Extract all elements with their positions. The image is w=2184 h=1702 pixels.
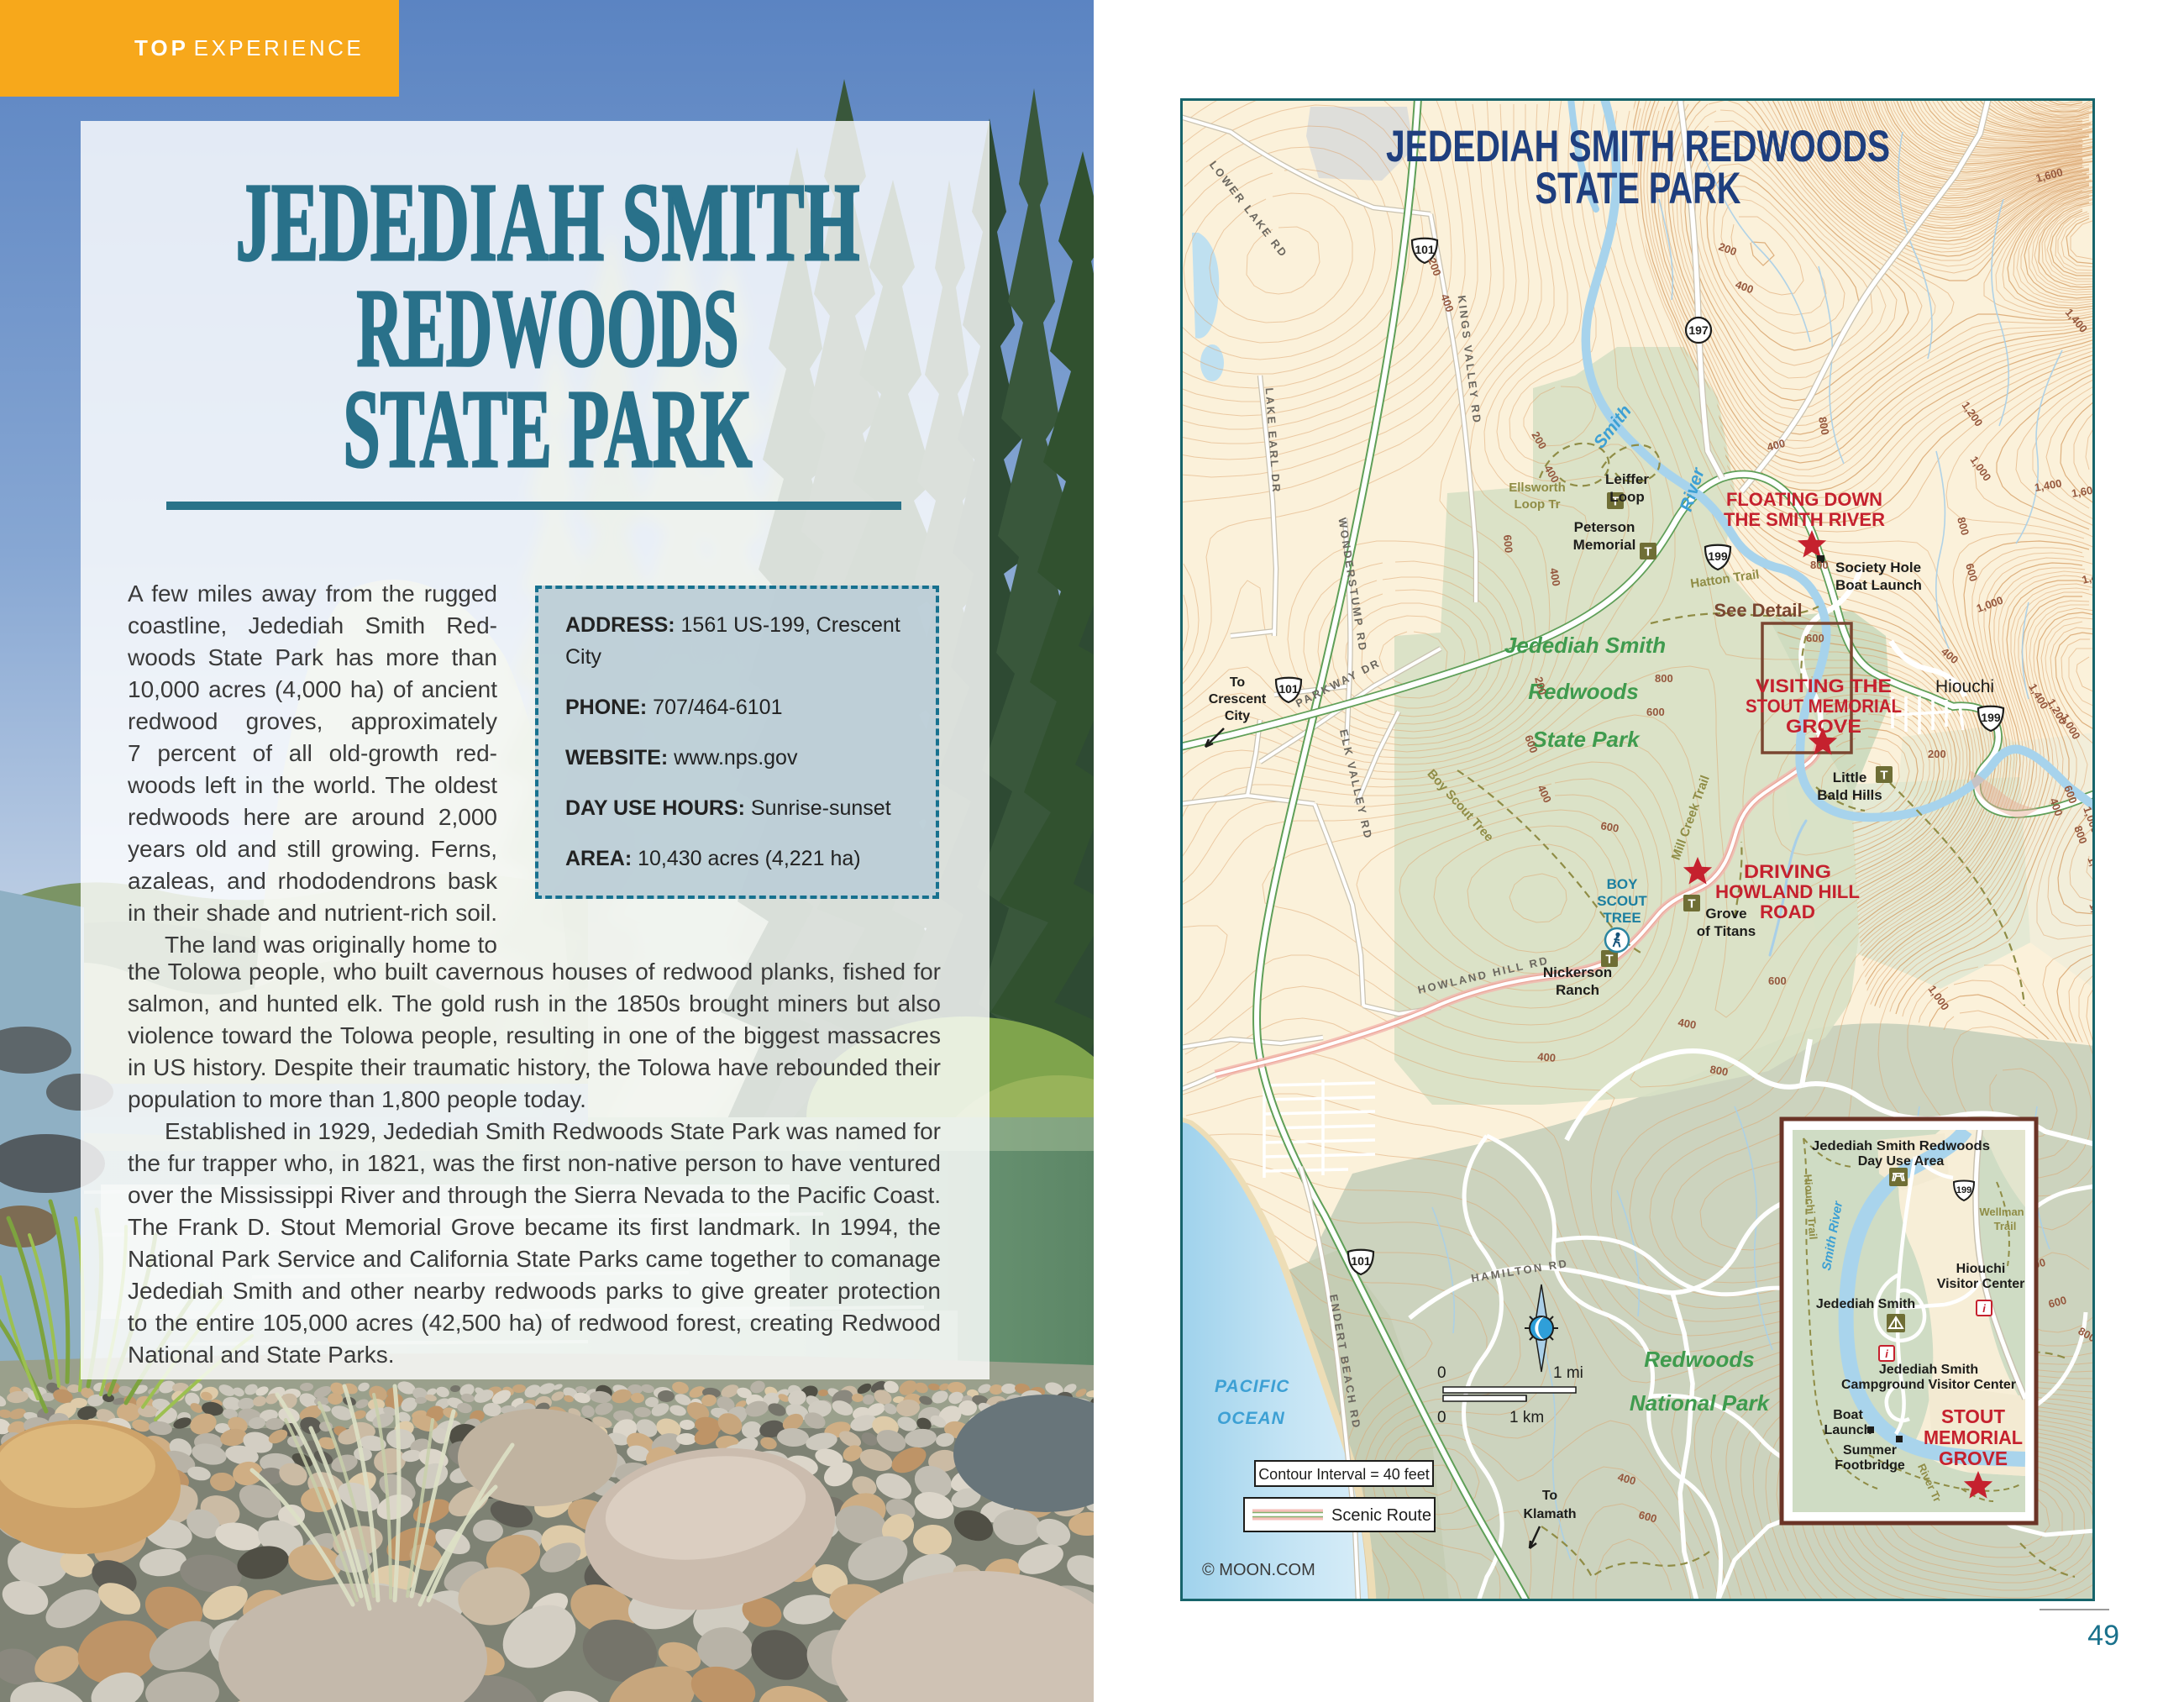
svg-text:Leiffer: Leiffer [1605,471,1649,487]
svg-text:199: 199 [1956,1185,1971,1195]
svg-text:197: 197 [1688,323,1709,337]
svg-text:Crescent: Crescent [1209,692,1267,707]
svg-text:199: 199 [1708,549,1728,563]
svg-text:i: i [1982,1302,1986,1315]
svg-text:ROAD: ROAD [1760,901,1815,922]
svg-text:Launch: Launch [1824,1423,1872,1437]
svg-text:State Park: State Park [1532,727,1641,752]
svg-text:OCEAN: OCEAN [1217,1409,1285,1428]
svg-text:To: To [1542,1489,1558,1503]
svg-text:Hiouchi: Hiouchi [1935,677,1994,696]
svg-text:Ellsworth: Ellsworth [1509,481,1566,495]
svg-text:STATE PARK: STATE PARK [344,366,753,491]
svg-text:GROVE: GROVE [1786,716,1861,737]
svg-text:Little: Little [1833,770,1867,785]
svg-text:of Titans: of Titans [1697,923,1756,939]
svg-text:Jedediah Smith Redwoods: Jedediah Smith Redwoods [1812,1139,1990,1153]
svg-text:Loop Tr: Loop Tr [1515,497,1561,512]
svg-text:Klamath: Klamath [1523,1507,1576,1521]
svg-text:Boat Launch: Boat Launch [1835,577,1922,593]
svg-text:PACIFIC: PACIFIC [1215,1377,1289,1396]
svg-text:Day Use Area: Day Use Area [1858,1154,1945,1169]
svg-text:Visitor Center: Visitor Center [1937,1277,2025,1291]
svg-text:STOUT MEMORIAL: STOUT MEMORIAL [1746,696,1902,717]
svg-text:DRIVING: DRIVING [1744,861,1831,882]
svg-text:Memorial: Memorial [1573,537,1636,553]
svg-text:Trail: Trail [1994,1220,2017,1232]
svg-text:Bald Hills: Bald Hills [1817,787,1882,803]
svg-text:0: 0 [1437,1364,1446,1382]
svg-text:HOWLAND HILL: HOWLAND HILL [1715,881,1860,902]
svg-text:Contour Interval = 40 feet: Contour Interval = 40 feet [1258,1466,1430,1483]
svg-text:Jedediah Smith: Jedediah Smith [1816,1297,1915,1311]
svg-text:Jedediah Smith: Jedediah Smith [1879,1363,1978,1377]
svg-text:© MOON.COM: © MOON.COM [1202,1561,1315,1579]
svg-text:Scenic Route: Scenic Route [1331,1506,1431,1525]
svg-text:101: 101 [1351,1254,1371,1268]
svg-text:Jedediah Smith: Jedediah Smith [1504,633,1666,658]
svg-text:VISITING THE: VISITING THE [1756,675,1892,696]
svg-text:TREE: TREE [1603,910,1641,926]
svg-text:Peterson: Peterson [1574,519,1635,535]
svg-text:MEMORIAL: MEMORIAL [1924,1426,2023,1448]
svg-text:600: 600 [1806,632,1824,644]
svg-text:STATE PARK: STATE PARK [1536,164,1741,213]
svg-text:Boat: Boat [1833,1408,1863,1422]
svg-text:BOY: BOY [1607,876,1639,892]
svg-text:National Park: National Park [1630,1390,1771,1416]
svg-text:See Detail: See Detail [1714,600,1802,621]
svg-text:To: To [1230,675,1246,690]
svg-text:0: 0 [1437,1409,1446,1426]
svg-text:600: 600 [1768,974,1787,987]
svg-text:Grove: Grove [1705,906,1746,922]
svg-text:1 km: 1 km [1509,1409,1544,1426]
svg-text:400: 400 [1537,1050,1557,1064]
svg-text:STOUT: STOUT [1941,1405,2005,1427]
svg-text:800: 800 [1655,672,1673,685]
svg-text:Footbridge: Footbridge [1835,1458,1905,1473]
svg-text:101: 101 [1415,243,1435,256]
svg-text:Summer: Summer [1843,1443,1897,1458]
svg-text:101: 101 [1278,682,1299,696]
svg-text:Redwoods: Redwoods [1644,1347,1754,1372]
svg-text:Ranch: Ranch [1556,982,1599,998]
svg-text:Wellman: Wellman [1979,1206,2024,1218]
svg-text:200: 200 [1928,748,1946,760]
svg-text:i: i [1885,1347,1888,1360]
svg-text:Campground Visitor Center: Campground Visitor Center [1841,1378,2016,1392]
svg-text:SCOUT: SCOUT [1597,893,1647,909]
svg-text:City: City [1225,709,1250,723]
svg-text:199: 199 [1981,711,2001,724]
svg-text:Society Hole: Society Hole [1835,559,1921,575]
svg-text:Loop: Loop [1609,489,1645,505]
svg-text:1 mi: 1 mi [1553,1364,1583,1382]
svg-text:800: 800 [1810,559,1829,571]
svg-text:600: 600 [1646,706,1665,718]
svg-text:Nickerson: Nickerson [1543,964,1612,980]
svg-text:Hiouchi: Hiouchi [1956,1262,2006,1276]
svg-text:FLOATING DOWN: FLOATING DOWN [1726,489,1882,510]
svg-text:THE SMITH RIVER: THE SMITH RIVER [1724,509,1885,530]
svg-text:600: 600 [1501,534,1515,554]
svg-text:GROVE: GROVE [1939,1447,2008,1469]
